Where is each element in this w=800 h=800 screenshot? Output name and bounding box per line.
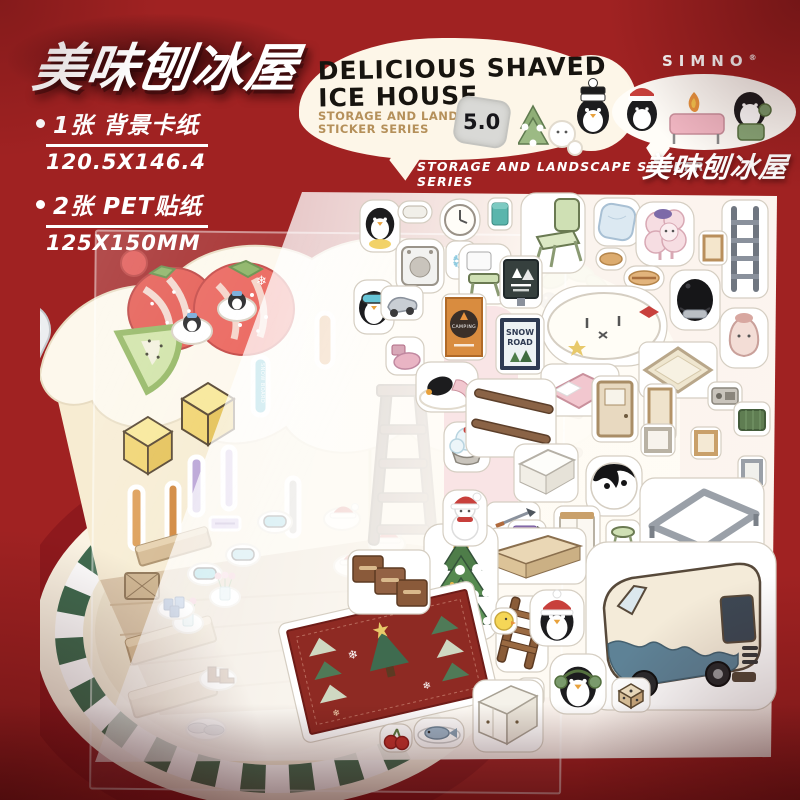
penguins-campfire-scene	[618, 80, 790, 146]
spec-underline	[46, 144, 208, 147]
brand-logo: SIMNO®	[662, 52, 757, 70]
brand-product-title: 美味刨冰屋	[641, 146, 790, 186]
version-badge: 5.0	[452, 94, 513, 150]
camp-sign-sticker	[500, 256, 542, 308]
snowmobile-sticker	[381, 286, 423, 320]
registered-mark: ®	[749, 53, 757, 62]
product-poster: ❄ ❄ ❄	[0, 0, 800, 800]
table-sticker	[514, 444, 578, 502]
wall-clock-sticker	[440, 199, 480, 241]
camping-poster-sticker: CAMPING	[442, 294, 486, 360]
pillow-sticker	[594, 198, 640, 246]
spec-value: 125X150MM	[46, 231, 208, 255]
penguin-red-hat-sticker	[530, 590, 584, 646]
wooden-lockers-sticker	[348, 550, 430, 614]
series-subtitle-line2: STICKER SERIES	[318, 122, 429, 136]
camping-label: CAMPING	[452, 324, 476, 330]
picture-frame-sticker	[691, 427, 721, 459]
spec-label: 1张 背景卡纸	[53, 106, 199, 140]
metal-ladder-sticker	[722, 200, 768, 298]
picture-frame-sticker	[699, 231, 727, 265]
spec-list: 1张 背景卡纸 120.5X146.4 2张 PET贴纸 125X150MM	[36, 106, 208, 268]
fish-plate-sticker	[414, 718, 464, 748]
dice-sticker	[612, 678, 650, 712]
penguin-back-sticker	[670, 270, 720, 330]
spec-item: 2张 PET贴纸 125X150MM	[36, 187, 208, 255]
cup-sticker	[488, 198, 512, 230]
spec-item: 1张 背景卡纸 120.5X146.4	[36, 106, 208, 174]
washing-machine-sticker	[396, 239, 444, 293]
santa-snowman-sticker	[443, 490, 487, 546]
white-cabinet-sticker	[473, 680, 543, 752]
bullet-dot-icon	[36, 200, 45, 209]
basket-sticker	[734, 402, 770, 436]
english-title-line2: ICE HOUSE	[318, 80, 478, 112]
spec-value: 120.5X146.4	[46, 150, 208, 174]
sheep-plush-sticker	[636, 202, 694, 266]
spec-underline	[46, 225, 208, 228]
pink-creature-sticker	[720, 308, 768, 368]
version-number: 5.0	[463, 110, 500, 134]
snow-road-sign-sticker: SNOW ROAD	[496, 314, 544, 374]
door-sticker	[592, 376, 638, 442]
snow-road-line2: ROAD	[507, 338, 533, 347]
penguin-sticker	[360, 200, 400, 252]
picture-frame-sticker	[641, 424, 675, 456]
bullet-dot-icon	[36, 119, 45, 128]
chick-sticker	[491, 608, 517, 634]
penguin-headphones-sticker	[550, 654, 606, 714]
penguin-striped-hat-icon	[570, 76, 616, 136]
spec-label: 2张 PET贴纸	[53, 187, 202, 221]
baguette-sticker	[596, 248, 626, 270]
cherry-sticker	[380, 724, 412, 752]
brand-name: SIMNO	[662, 52, 749, 70]
snow-road-line1: SNOW	[506, 328, 534, 337]
page-title: 美味刨冰屋	[29, 26, 320, 101]
capsule-pill-sticker	[398, 201, 432, 223]
counter-sticker	[486, 528, 586, 584]
